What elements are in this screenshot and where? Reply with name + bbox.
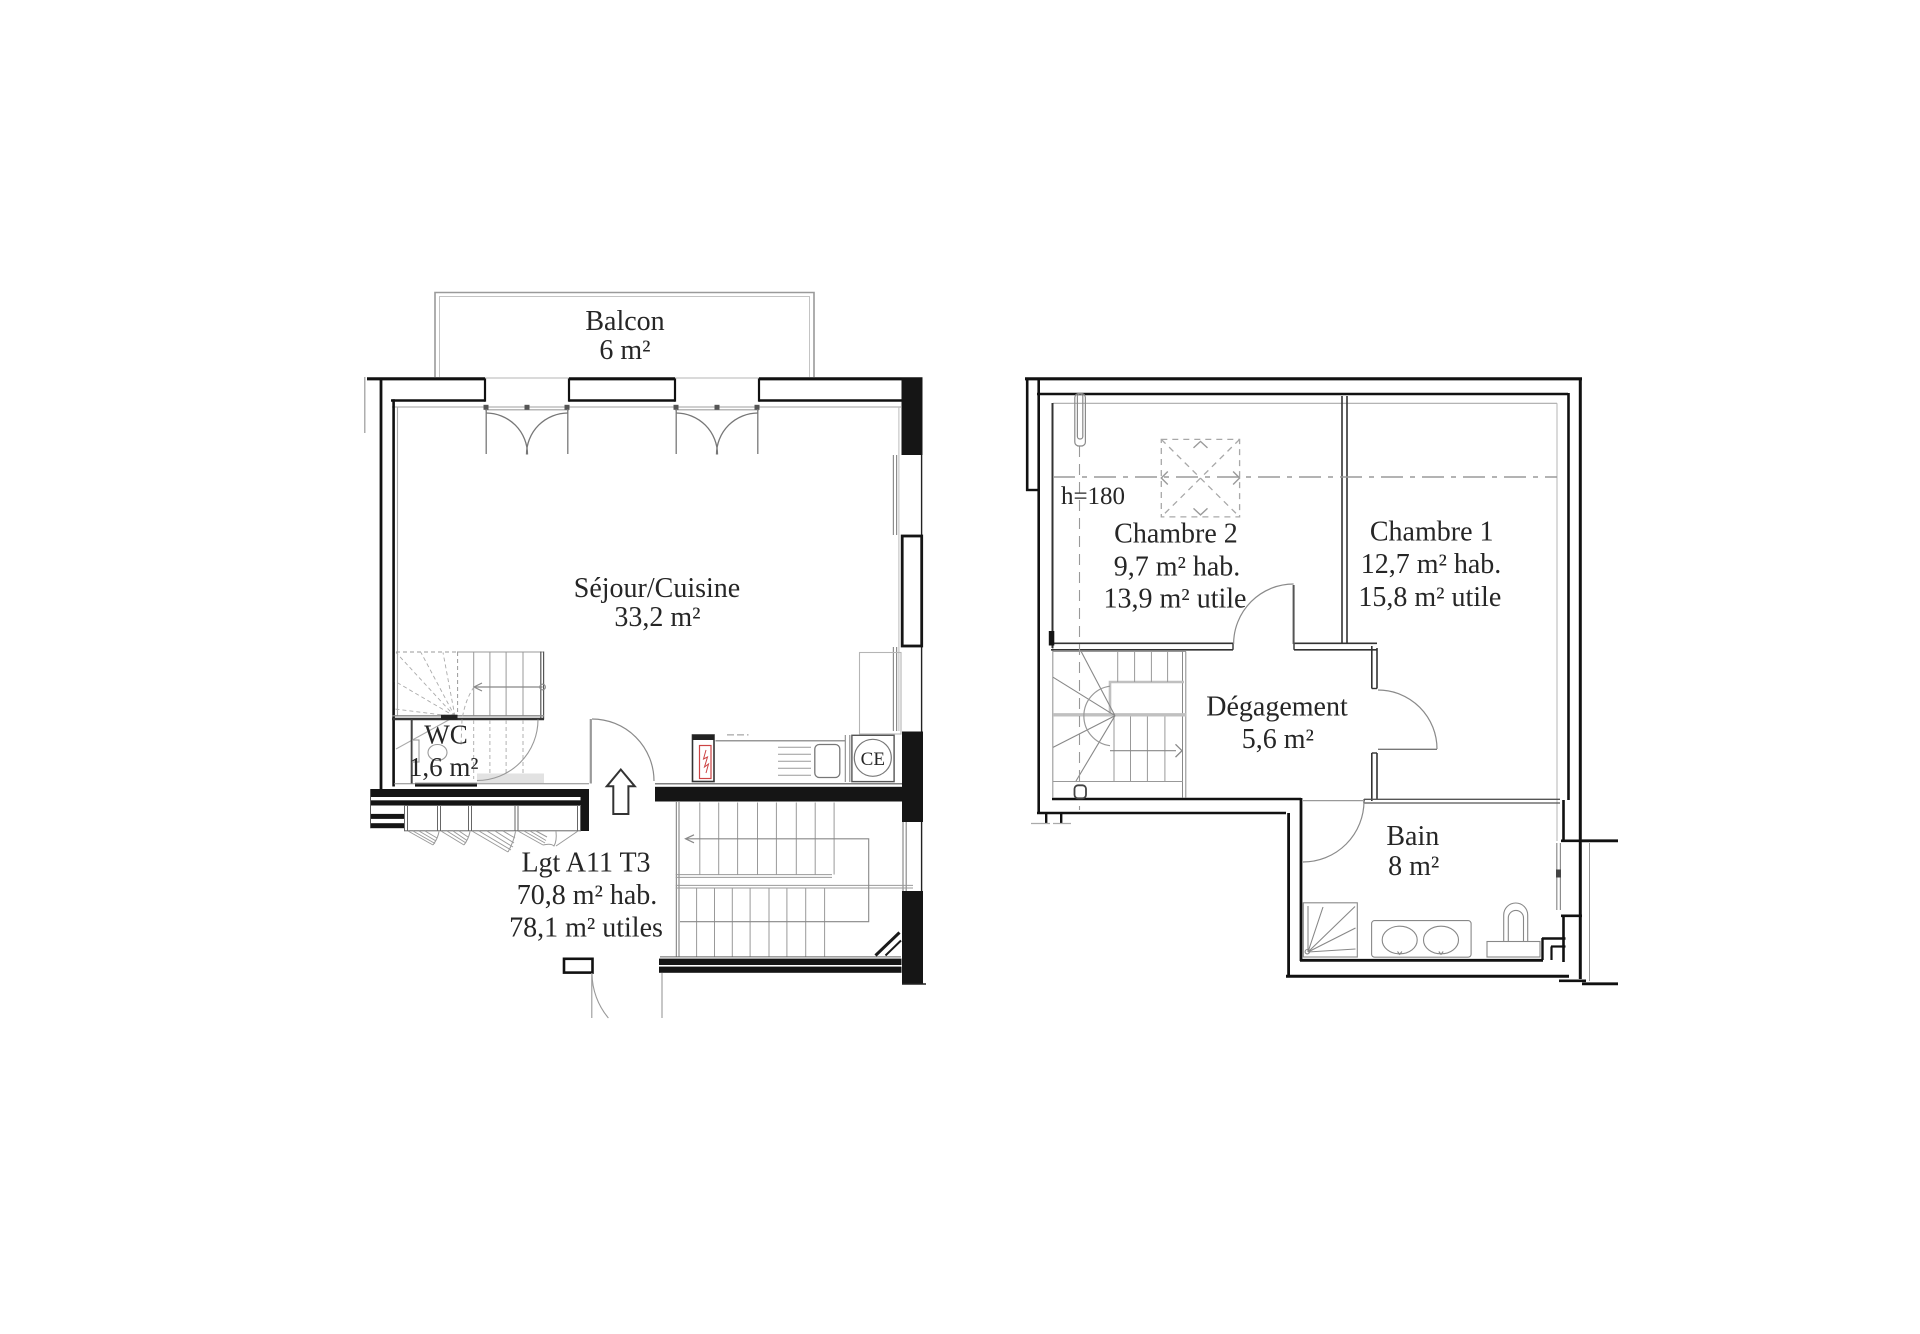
svg-text:12,7 m² hab.: 12,7 m² hab. — [1361, 549, 1502, 580]
svg-text:WC: WC — [424, 720, 468, 750]
svg-text:Bain: Bain — [1386, 821, 1439, 852]
svg-text:Chambre 1: Chambre 1 — [1370, 517, 1494, 548]
svg-text:Lgt A11 T3: Lgt A11 T3 — [521, 847, 650, 878]
svg-text:Séjour/Cuisine: Séjour/Cuisine — [574, 573, 740, 604]
svg-text:15,8 m² utile: 15,8 m² utile — [1358, 582, 1501, 613]
svg-text:Dégagement: Dégagement — [1206, 691, 1348, 722]
svg-text:Balcon: Balcon — [585, 306, 664, 337]
svg-text:5,6 m²: 5,6 m² — [1242, 724, 1314, 755]
svg-text:CE: CE — [861, 749, 885, 770]
svg-text:33,2 m²: 33,2 m² — [614, 602, 700, 633]
svg-text:Chambre 2: Chambre 2 — [1114, 519, 1238, 550]
svg-text:9,7 m² hab.: 9,7 m² hab. — [1114, 552, 1241, 583]
svg-text:8 m²: 8 m² — [1388, 851, 1439, 882]
svg-text:13,9 m² utile: 13,9 m² utile — [1104, 584, 1247, 615]
svg-text:70,8 m² hab.: 70,8 m² hab. — [517, 880, 658, 911]
svg-text:1,6 m²: 1,6 m² — [409, 752, 479, 782]
svg-text:78,1 m² utiles: 78,1 m² utiles — [509, 912, 663, 943]
svg-text:h=180: h=180 — [1061, 483, 1125, 510]
svg-text:6 m²: 6 m² — [599, 335, 650, 366]
